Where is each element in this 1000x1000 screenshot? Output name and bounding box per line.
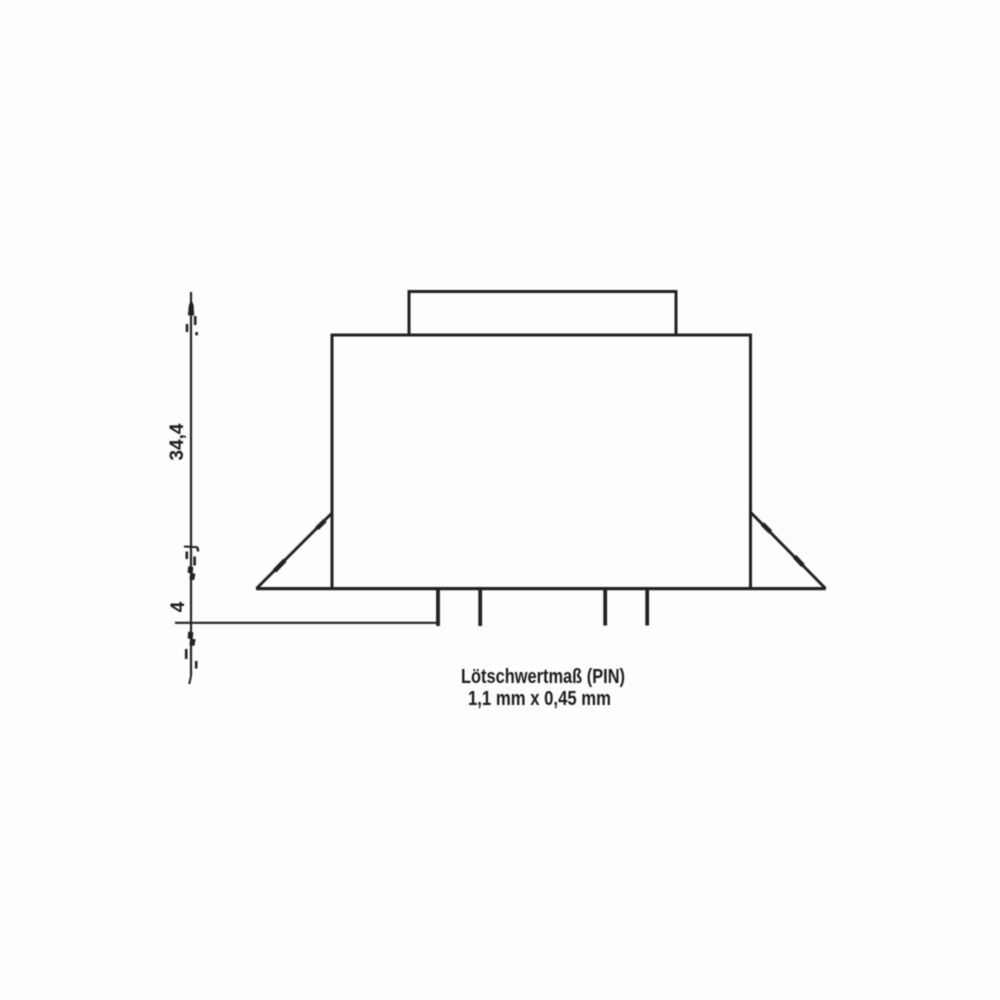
svg-text:Lötschwertmaß (PIN): Lötschwertmaß (PIN)	[461, 666, 625, 688]
svg-text:34,4: 34,4	[167, 423, 188, 460]
svg-text:1,1 mm x 0,45 mm: 1,1 mm x 0,45 mm	[468, 688, 611, 710]
svg-text:4: 4	[168, 601, 189, 612]
